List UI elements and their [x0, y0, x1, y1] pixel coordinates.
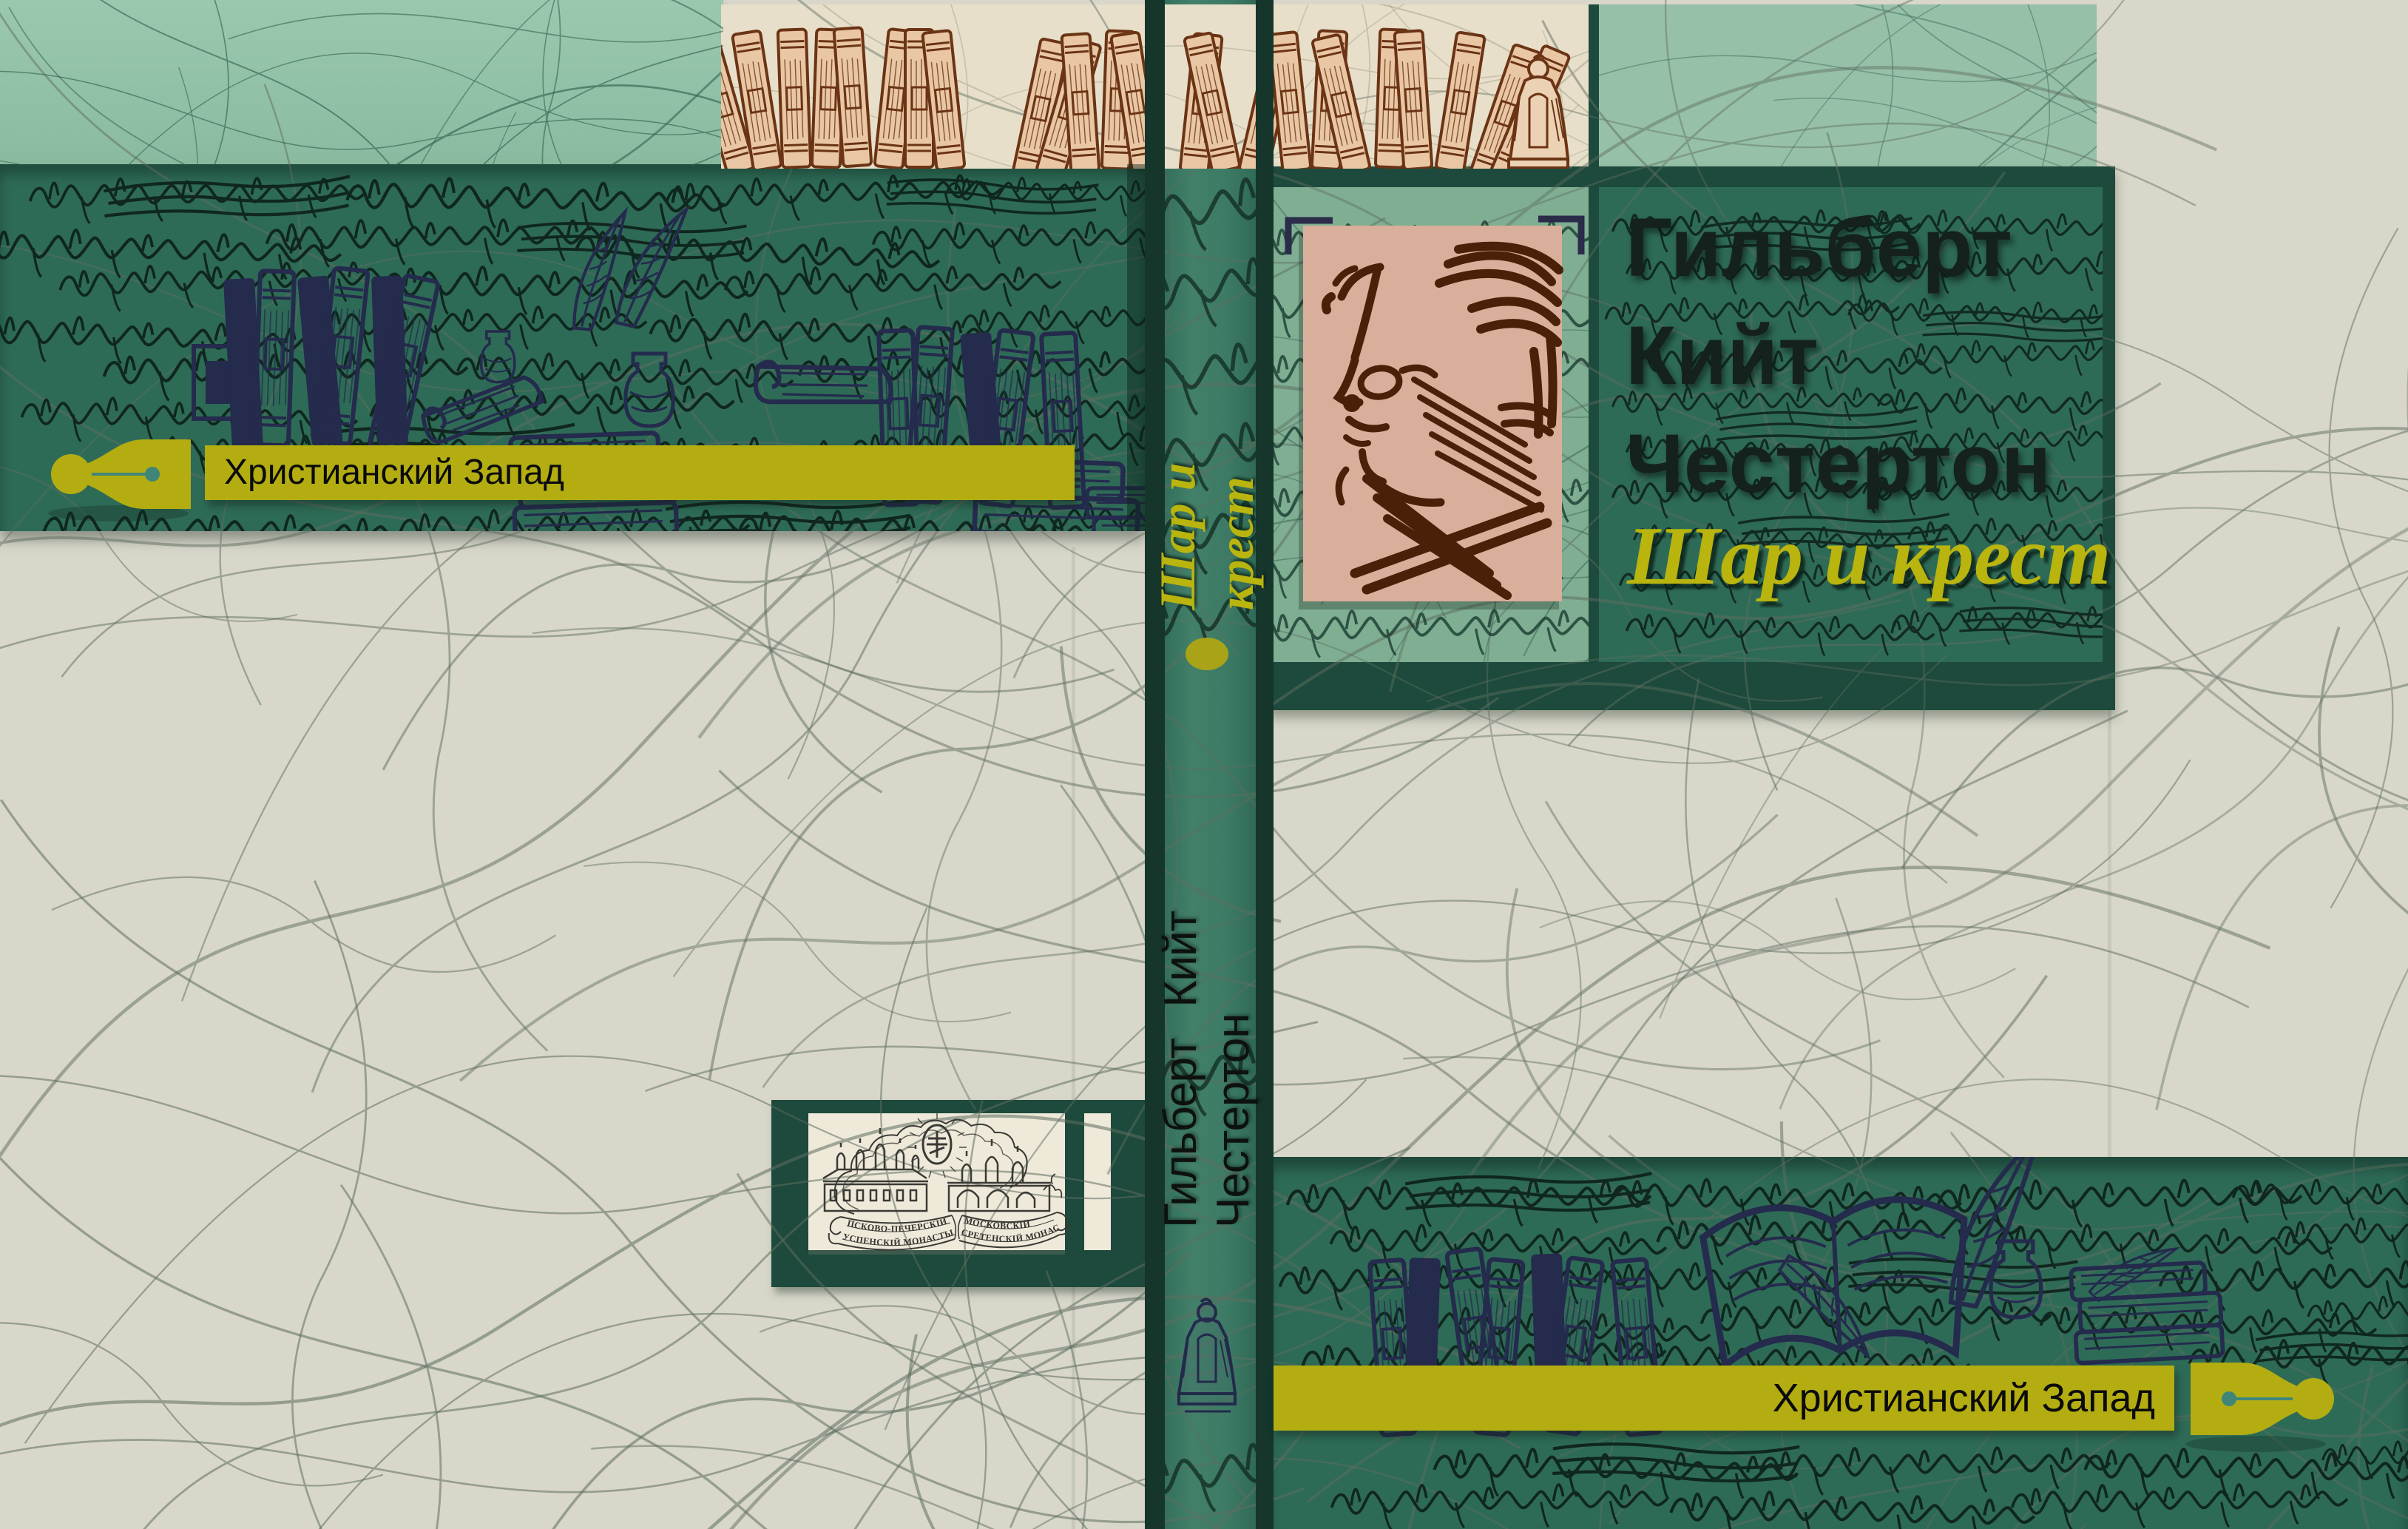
series-label-front: Христианский Запад	[1773, 1376, 2155, 1420]
spine-author-name: Гильберт Кийт Честертон	[1160, 710, 1254, 1228]
jacket-fold-line	[1072, 547, 1075, 1100]
portrait-panel	[1274, 187, 1589, 662]
top-books-strip	[721, 4, 1589, 169]
spine-book-title: Шар и крест	[1160, 329, 1254, 610]
publisher-logo-panel	[808, 1113, 1065, 1250]
author-line-3: Честертон	[1626, 410, 2114, 518]
front-author-name: Гильберт Кийт Честертон	[1626, 194, 2114, 518]
author-line-1: Гильберт	[1626, 194, 2114, 302]
series-label-back: Христианский Запад	[224, 453, 564, 492]
jacket-fold-line	[1072, 1287, 1075, 1529]
back-top-green-strip	[0, 0, 723, 166]
front-cover-illustration-band	[1268, 1157, 2408, 1529]
series-band-front: Христианский Запад	[1274, 1366, 2174, 1431]
author-line-2: Кийт	[1626, 302, 2114, 410]
series-band-back: Христианский Запад	[205, 445, 1075, 500]
book-jacket-spread: ПСКОВО-ПЕЧЕРСКІЙ УСПЕНСКІЙ МОНАСТЫРЬ МОС…	[0, 0, 2408, 1529]
publisher-logo-panel-sliver	[1084, 1113, 1111, 1250]
jacket-fold-line	[2108, 710, 2111, 1157]
top-green-strip	[1599, 4, 2097, 166]
front-book-title: Шар и крест	[1627, 509, 2115, 604]
